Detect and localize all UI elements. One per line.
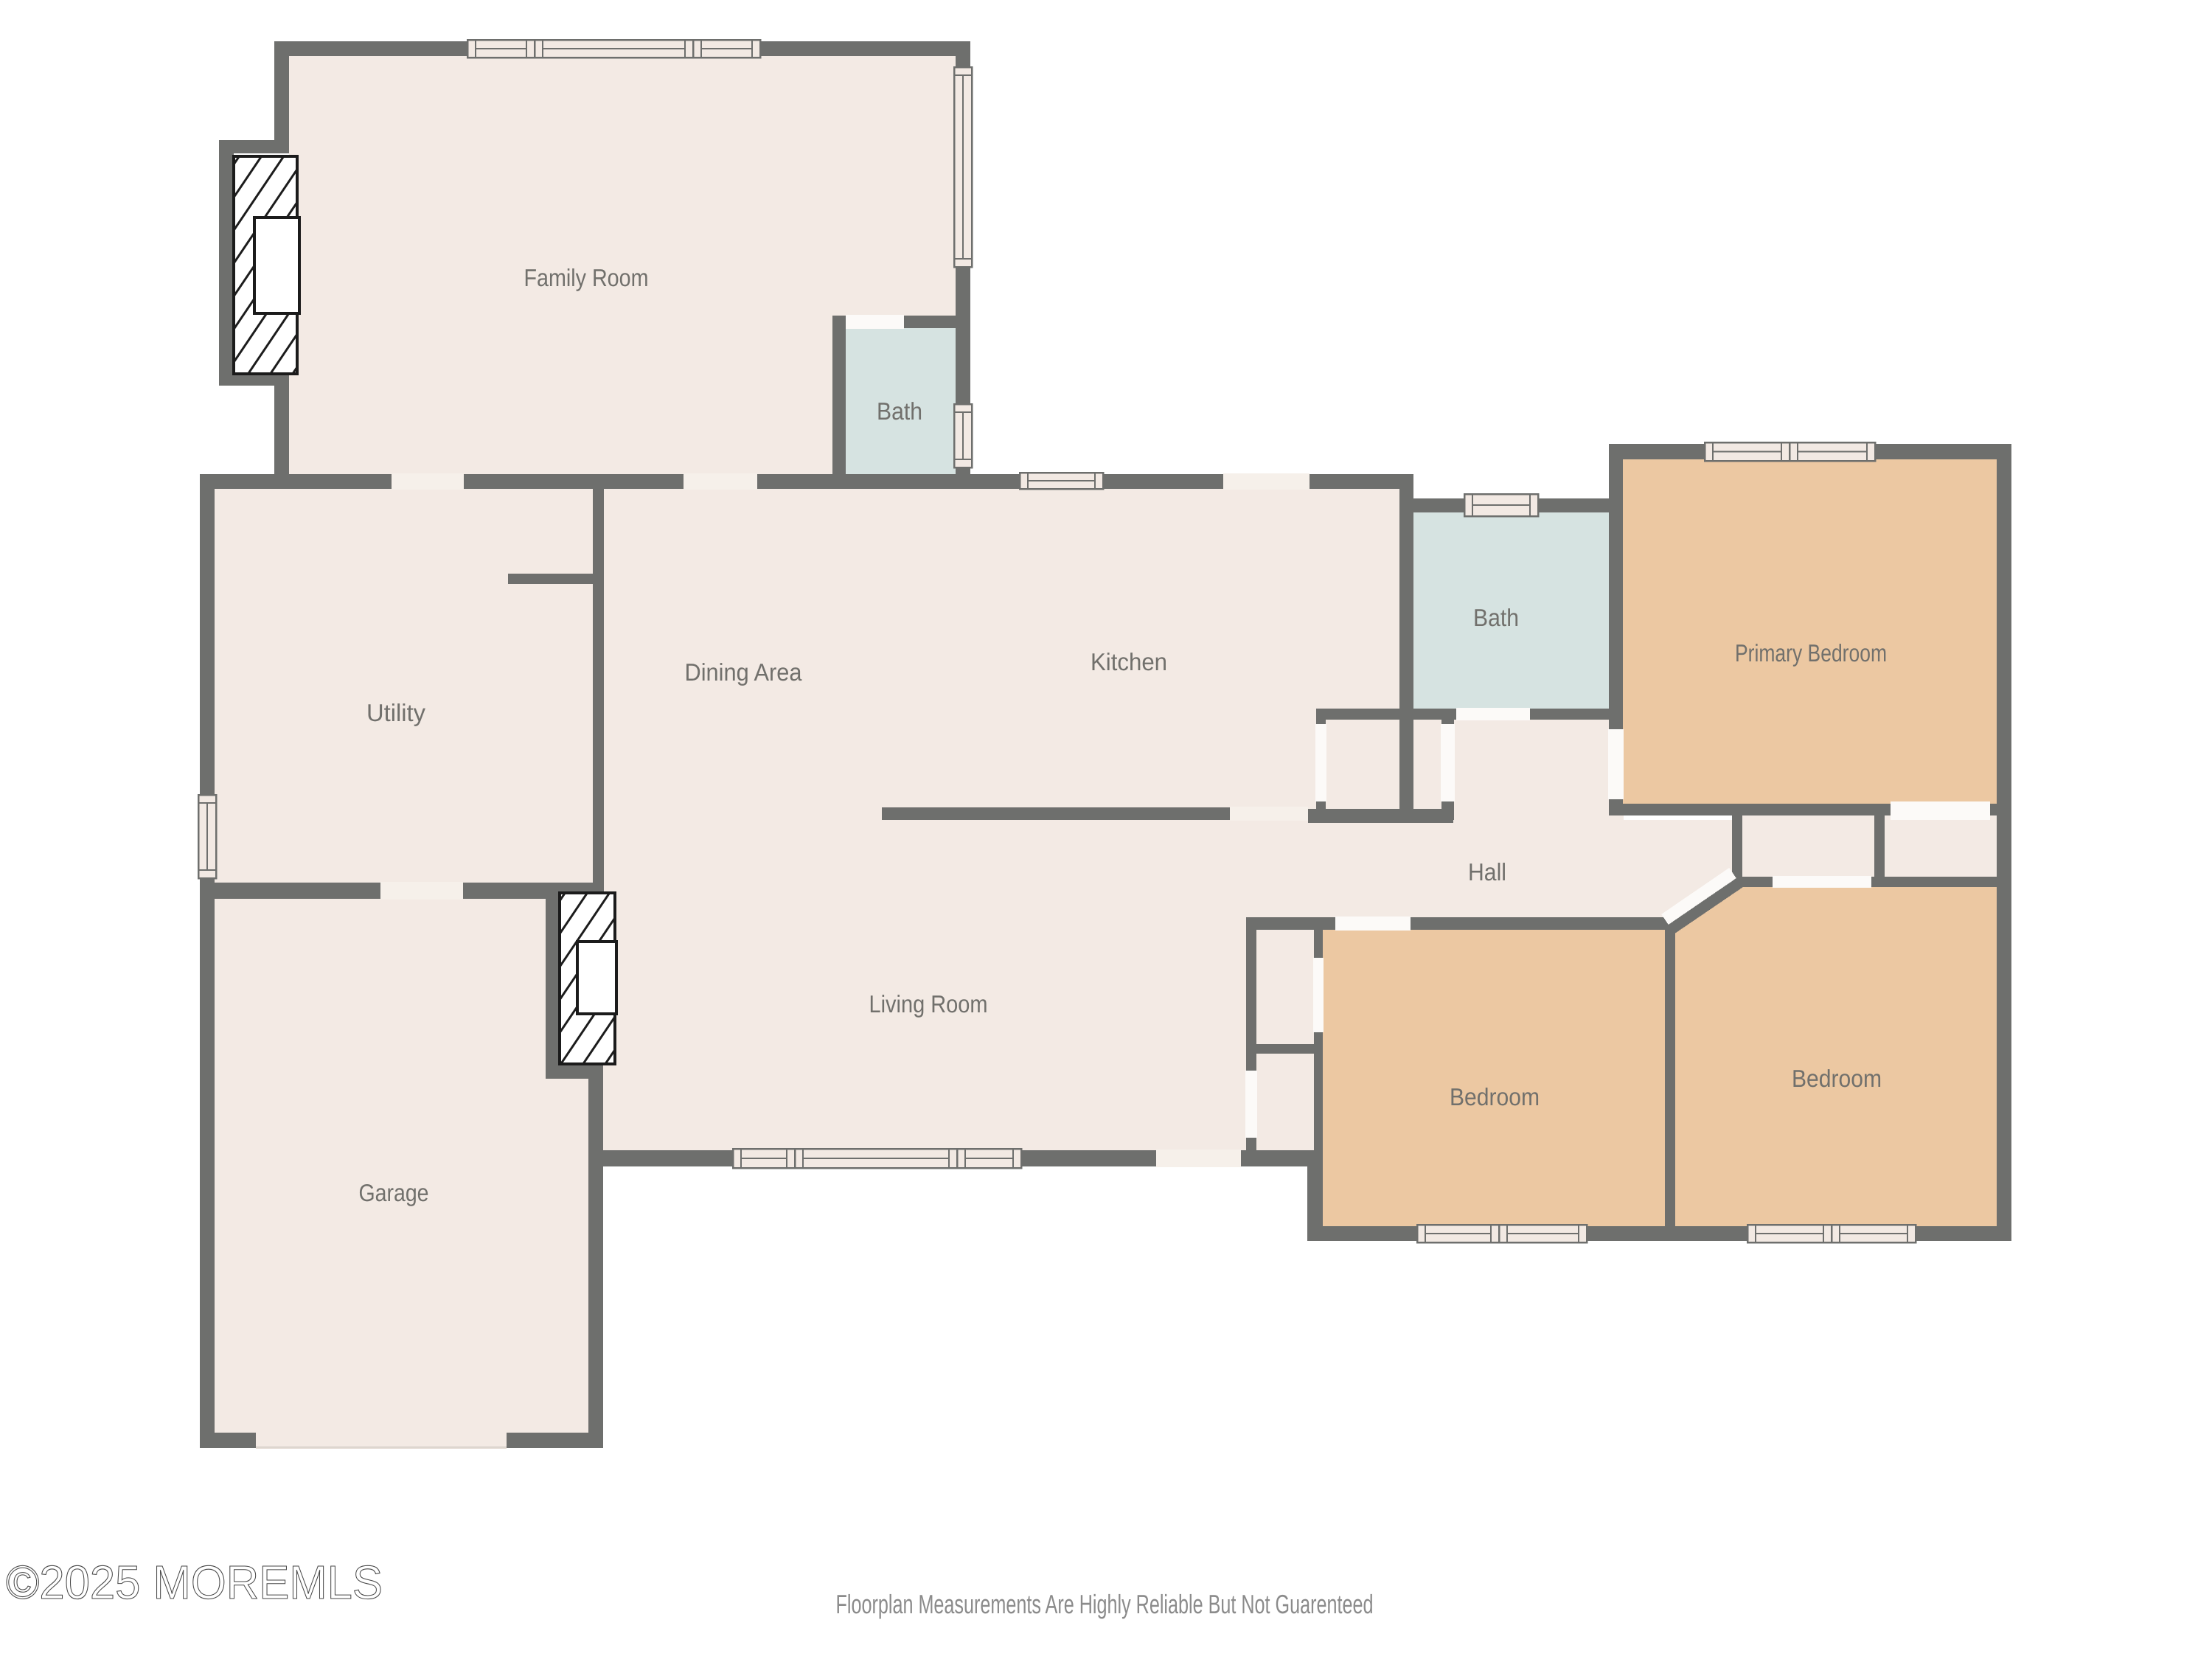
svg-text:©2025 MOREMLS: ©2025 MOREMLS: [6, 1556, 383, 1609]
svg-text:Dining Area: Dining Area: [685, 658, 803, 686]
svg-text:Bath: Bath: [1473, 604, 1519, 631]
svg-text:Living Room: Living Room: [869, 990, 988, 1018]
svg-text:Primary Bedroom: Primary Bedroom: [1735, 639, 1887, 667]
svg-text:Bath: Bath: [877, 397, 922, 425]
svg-text:Hall: Hall: [1468, 858, 1506, 886]
svg-text:Family Room: Family Room: [524, 264, 649, 291]
svg-text:Kitchen: Kitchen: [1091, 648, 1167, 675]
svg-text:Bedroom: Bedroom: [1450, 1083, 1540, 1110]
svg-text:Floorplan Measurements Are Hig: Floorplan Measurements Are Highly Reliab…: [836, 1589, 1374, 1619]
svg-text:Utility: Utility: [366, 699, 425, 726]
svg-text:Garage: Garage: [359, 1179, 429, 1206]
svg-text:Bedroom: Bedroom: [1792, 1065, 1882, 1092]
